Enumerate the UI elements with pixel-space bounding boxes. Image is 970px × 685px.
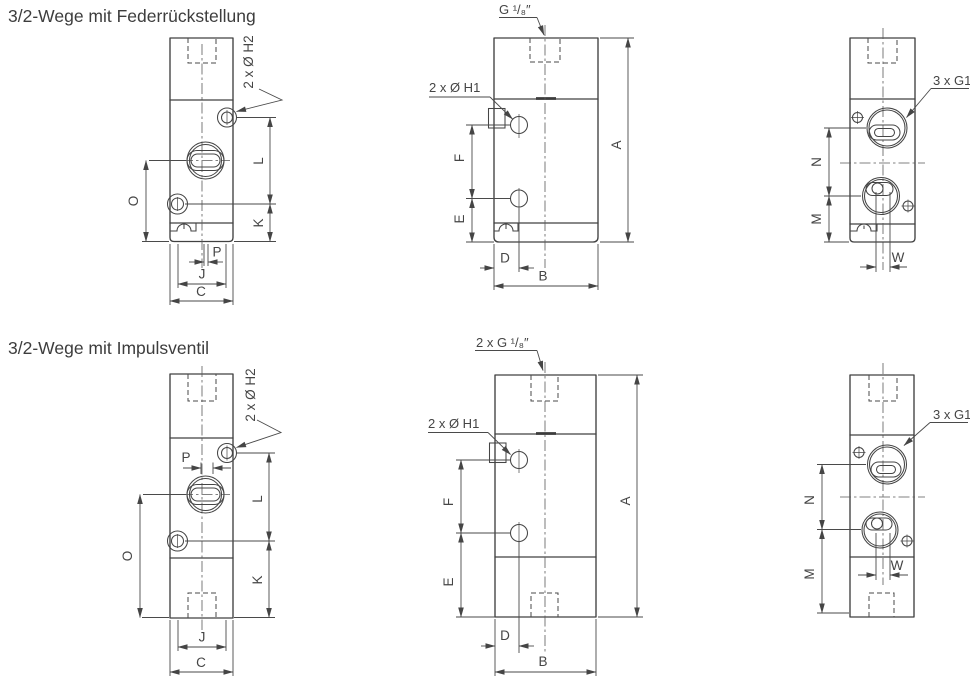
pilot-hole-bottom bbox=[511, 188, 528, 208]
dim-D: D bbox=[480, 208, 534, 290]
dim-F: F bbox=[452, 125, 510, 199]
callout-h1: 2 x Ø H1 bbox=[429, 80, 480, 95]
dim-label-J: J bbox=[199, 267, 206, 282]
dim-label-E: E bbox=[441, 577, 456, 586]
row2-end-view: 3 x G1 N M W bbox=[802, 363, 970, 617]
dim-D: D bbox=[481, 542, 534, 676]
hidden-port-bottom bbox=[531, 593, 558, 617]
dim-label-W: W bbox=[892, 250, 905, 265]
dim-A: A bbox=[598, 375, 643, 617]
leader-h2 bbox=[237, 420, 282, 448]
dim-label-N: N bbox=[809, 157, 824, 167]
leader-g1 bbox=[907, 89, 932, 118]
dim-E: E bbox=[452, 199, 494, 243]
dim-A: A bbox=[600, 38, 634, 242]
row-spring-return: 3/2-Wege mit Federrückstellung bbox=[8, 2, 970, 305]
dim-label-N: N bbox=[802, 495, 817, 505]
dim-label-C: C bbox=[196, 655, 206, 670]
dim-label-F: F bbox=[441, 498, 456, 506]
valve-body-outline bbox=[495, 375, 596, 617]
dim-label-L: L bbox=[251, 157, 266, 165]
dim-label-W: W bbox=[891, 558, 904, 573]
leader-h2 bbox=[237, 89, 283, 112]
screw-hole-right bbox=[901, 535, 914, 548]
dim-label-K: K bbox=[250, 575, 265, 584]
row1-end-view: 3 x G1 N M W bbox=[809, 28, 970, 272]
dim-L: L bbox=[185, 118, 276, 205]
row-impulse-valve: 3/2-Wege mit Impulsventil bbox=[8, 335, 970, 676]
valve-body-outline bbox=[170, 38, 233, 242]
row2-side-view: 2 x Ø H2 P O L K bbox=[120, 366, 281, 676]
row1-side-view: 2 x Ø H2 O L K P bbox=[126, 35, 282, 305]
base-notch bbox=[170, 224, 196, 232]
port-1 bbox=[867, 108, 907, 148]
dim-label-A: A bbox=[609, 140, 624, 149]
technical-drawing-page: 3/2-Wege mit Federrückstellung bbox=[0, 0, 970, 685]
dim-B: B bbox=[495, 619, 596, 676]
callout-h1: 2 x Ø H1 bbox=[428, 416, 479, 431]
dim-label-O: O bbox=[126, 196, 141, 207]
dim-label-M: M bbox=[802, 568, 817, 579]
leader-thread bbox=[537, 18, 544, 36]
dim-C: C bbox=[170, 620, 233, 676]
callout-thread: G ¹/₈″ bbox=[499, 2, 531, 17]
dim-label-B: B bbox=[538, 654, 547, 669]
dim-O: O bbox=[120, 495, 186, 618]
dim-L: L bbox=[185, 453, 275, 541]
dim-M: M bbox=[802, 530, 849, 614]
pilot-hole-top bbox=[511, 449, 528, 473]
callout-thread: 2 x G ¹/₈″ bbox=[476, 335, 529, 350]
dim-label-K: K bbox=[251, 218, 266, 227]
dim-label-L: L bbox=[250, 495, 265, 503]
valve-body-outline bbox=[850, 375, 914, 617]
dim-K: K bbox=[234, 204, 276, 242]
dim-label-C: C bbox=[196, 284, 206, 299]
dim-label-E: E bbox=[452, 214, 467, 223]
port-2 bbox=[862, 512, 898, 548]
port-1 bbox=[868, 445, 907, 484]
dim-label-D: D bbox=[500, 251, 510, 266]
dim-label-J: J bbox=[199, 630, 206, 645]
hidden-port-bottom bbox=[869, 593, 894, 617]
dim-F: F bbox=[441, 460, 510, 533]
callout-h2: 2 x Ø H2 bbox=[243, 368, 258, 421]
dim-P: P bbox=[189, 244, 223, 266]
dim-label-O: O bbox=[120, 551, 135, 562]
screw-hole-left bbox=[853, 446, 866, 459]
dim-label-A: A bbox=[618, 496, 633, 505]
screw-hole-right bbox=[902, 200, 915, 213]
callout-g1: 3 x G1 bbox=[933, 73, 970, 88]
pilot-hole-top bbox=[511, 114, 528, 138]
valve-dimension-drawing: 3/2-Wege mit Federrückstellung bbox=[0, 0, 970, 685]
dim-label-F: F bbox=[452, 154, 467, 162]
row1-title: 3/2-Wege mit Federrückstellung bbox=[8, 6, 256, 26]
dim-label-B: B bbox=[538, 269, 547, 284]
callout-g1: 3 x G1 bbox=[933, 407, 970, 422]
base-notch bbox=[850, 224, 877, 231]
hidden-port-top bbox=[868, 38, 897, 63]
row2-title: 3/2-Wege mit Impulsventil bbox=[8, 338, 209, 358]
callout-h2: 2 x Ø H2 bbox=[241, 35, 256, 88]
row1-front-view: G ¹/₈″ 2 x Ø H1 A F E bbox=[429, 2, 634, 290]
leader-thread bbox=[537, 351, 543, 371]
base-notch bbox=[494, 224, 518, 232]
valve-body-outline bbox=[494, 38, 598, 242]
row2-front-view: 2 x G ¹/₈″ 2 x Ø H1 A F E bbox=[428, 335, 643, 676]
dim-K: K bbox=[234, 541, 275, 618]
port-2 bbox=[863, 178, 900, 215]
dim-label-D: D bbox=[500, 628, 510, 643]
hidden-port-top bbox=[531, 375, 558, 401]
pilot-hole-bottom bbox=[511, 522, 528, 543]
dim-label-M: M bbox=[809, 213, 824, 224]
dim-label-P: P bbox=[181, 450, 190, 465]
dim-E: E bbox=[441, 533, 495, 617]
dim-N: N bbox=[809, 128, 866, 196]
dim-label-P: P bbox=[212, 245, 221, 260]
screw-hole-left bbox=[851, 111, 864, 124]
leader-g1 bbox=[904, 423, 930, 446]
dim-M: M bbox=[809, 196, 849, 242]
